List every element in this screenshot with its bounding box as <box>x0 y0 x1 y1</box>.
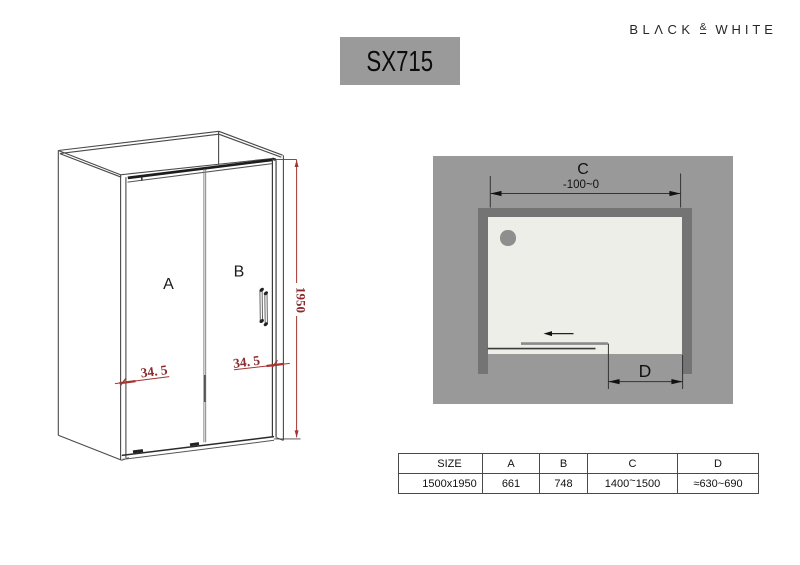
svg-text:34. 5: 34. 5 <box>232 353 261 371</box>
svg-text:1950: 1950 <box>293 287 308 313</box>
svg-text:B: B <box>234 264 245 281</box>
svg-text:A: A <box>163 276 174 293</box>
